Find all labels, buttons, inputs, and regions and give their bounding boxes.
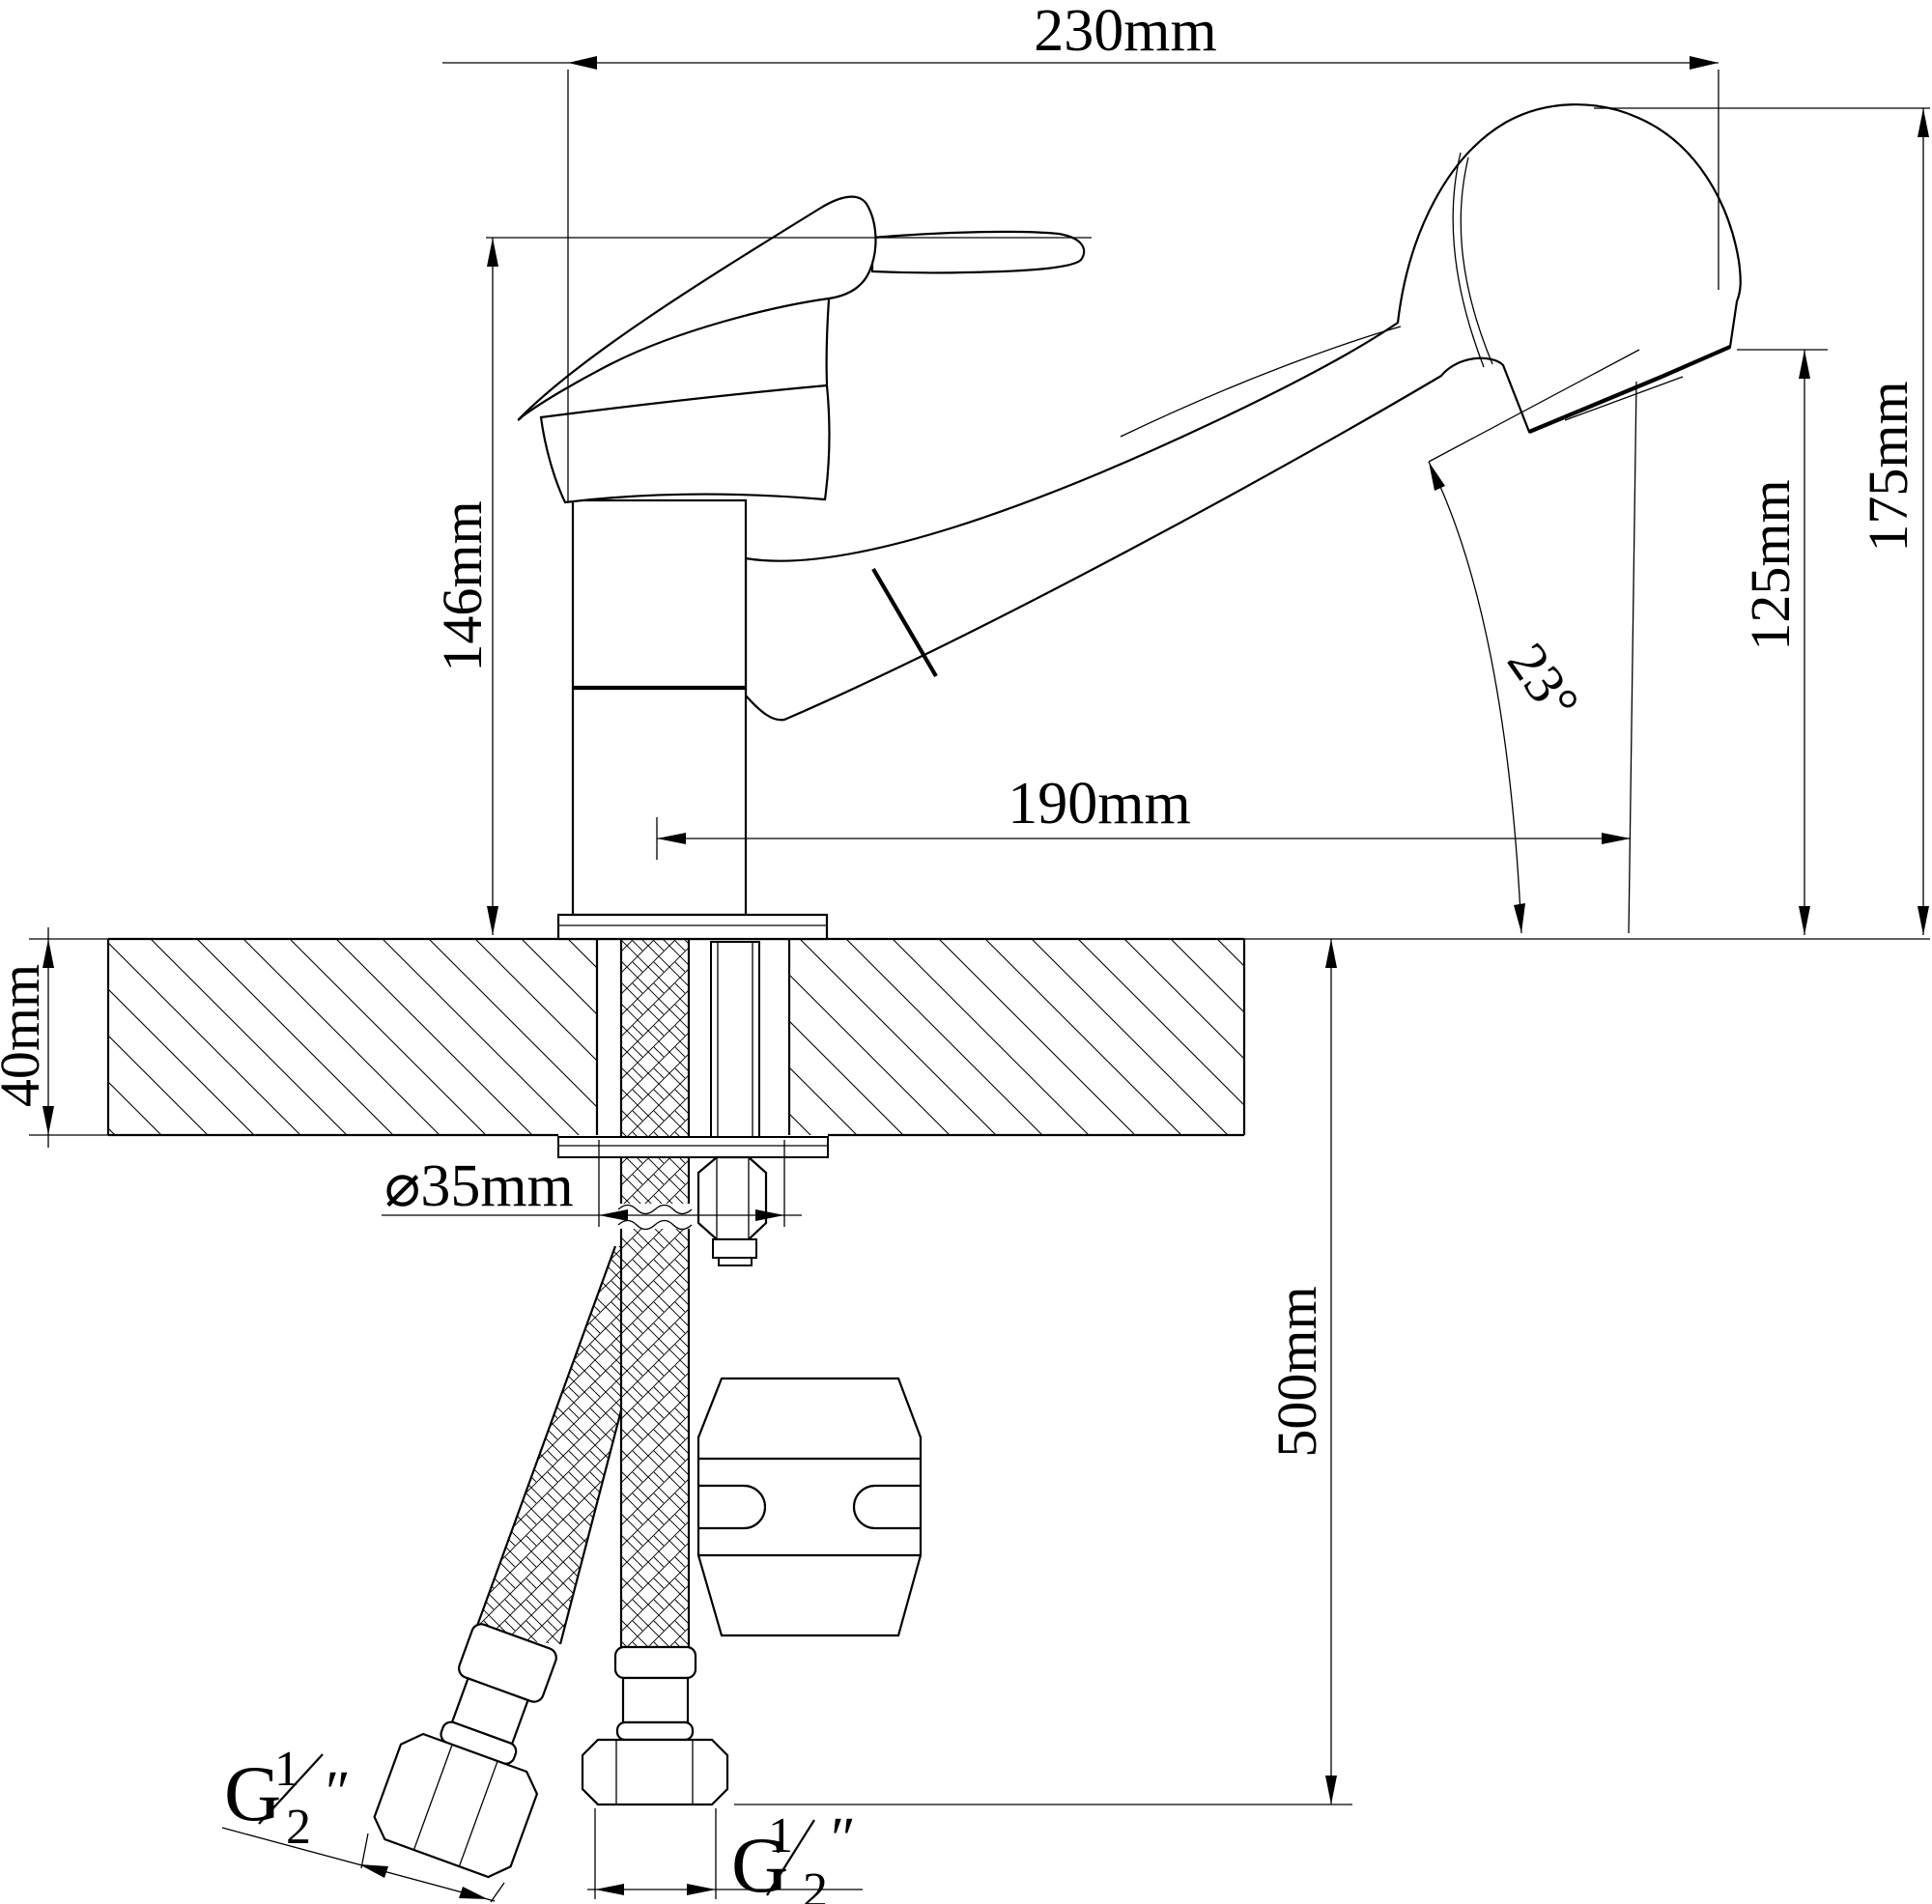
faucet-body <box>573 500 746 915</box>
stud-tail-chamfer <box>719 1258 752 1265</box>
angle-vertical-leg <box>1629 382 1636 933</box>
dim-spout-reach: 190mm <box>657 771 1631 860</box>
connector-left <box>368 1612 584 1884</box>
countertop-section <box>108 939 1930 1135</box>
dim-outlet-height-label: 125mm <box>1739 479 1802 650</box>
braided-hose-left <box>473 1246 621 1644</box>
dim-deck-thickness-label: 40mm <box>0 964 51 1107</box>
dim-head-angle-label: 23° <box>1495 632 1592 732</box>
countertop-hatch-left <box>108 939 597 1135</box>
dim-spout-reach-label: 190mm <box>1008 771 1190 837</box>
threaded-stud <box>711 942 759 1157</box>
handle-cap <box>541 385 829 502</box>
thread-left-prefix: G <box>224 1749 281 1837</box>
thread-bottom-denominator: 2 <box>803 1863 828 1904</box>
countertop-hatch-right <box>789 939 1244 1135</box>
dim-hose-length-label: 500mm <box>1265 1286 1328 1457</box>
thread-left-inch-mark: ″ <box>326 1760 351 1826</box>
dim-overall-length-label: 230mm <box>1034 0 1216 64</box>
dim-total-height-label: 175mm <box>1857 381 1919 552</box>
lever-chin-edge <box>827 299 829 384</box>
spout-and-spray-head <box>746 104 1741 720</box>
thread-bottom-numerator: 1 <box>768 1808 793 1863</box>
dim-handle-height-label: 146mm <box>431 500 494 671</box>
thread-left-denominator: 2 <box>286 1800 311 1855</box>
dim-head-angle: 23° <box>1429 350 1639 933</box>
base-flange <box>558 915 827 939</box>
faucet-installation-diagram: 230mm 146mm 175mm 125mm <box>0 0 1932 1904</box>
dim-thread-bottom: G 1 2 ″ <box>587 1806 863 1904</box>
thread-left-numerator: 1 <box>274 1742 299 1797</box>
dim-hole-diameter-label: ⌀35mm <box>384 1153 574 1219</box>
spray-head <box>746 104 1741 720</box>
hose-weight <box>698 1378 921 1635</box>
thread-bottom-inch-mark: ″ <box>831 1806 856 1872</box>
technical-drawing-page: 230mm 146mm 175mm 125mm <box>0 0 1932 1904</box>
connector-bottom <box>582 1647 727 1805</box>
hose-break-symbol <box>618 1204 692 1230</box>
stud-tail <box>713 1239 756 1258</box>
dim-outlet-height: 125mm <box>1737 350 1828 935</box>
hex-nut-bottom <box>582 1740 727 1805</box>
dim-deck-thickness: 40mm <box>0 927 108 1148</box>
braided-hose-main <box>618 939 692 1647</box>
angle-arc <box>1429 462 1521 933</box>
